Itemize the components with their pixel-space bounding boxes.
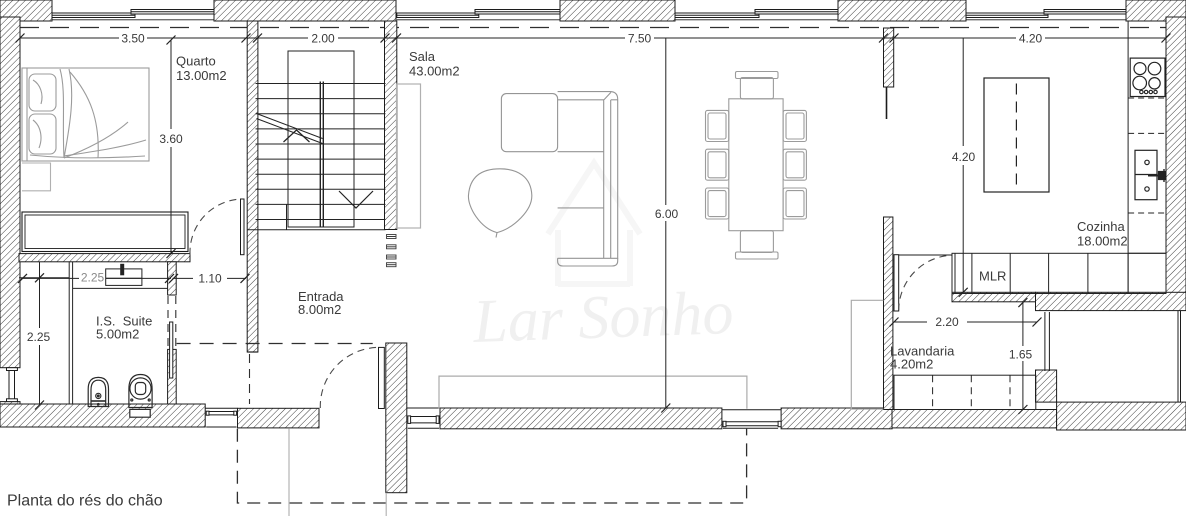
svg-text:18.00m2: 18.00m2 bbox=[1077, 234, 1128, 249]
svg-text:2.25: 2.25 bbox=[81, 271, 105, 285]
svg-text:Cozinha: Cozinha bbox=[1077, 219, 1125, 234]
svg-text:4.20: 4.20 bbox=[952, 150, 976, 164]
svg-text:7.50: 7.50 bbox=[628, 32, 652, 46]
svg-text:1.65: 1.65 bbox=[1009, 348, 1033, 362]
svg-text:3.60: 3.60 bbox=[159, 132, 183, 146]
svg-text:43.00m2: 43.00m2 bbox=[409, 64, 460, 79]
svg-text:2.00: 2.00 bbox=[311, 32, 335, 46]
svg-text:2.25: 2.25 bbox=[27, 330, 51, 344]
svg-text:MLR: MLR bbox=[979, 269, 1006, 284]
svg-text:5.00m2: 5.00m2 bbox=[96, 327, 139, 342]
svg-text:2.20: 2.20 bbox=[935, 315, 959, 329]
svg-text:4.20: 4.20 bbox=[1019, 32, 1043, 46]
svg-text:Quarto: Quarto bbox=[176, 54, 216, 69]
svg-text:13.00m2: 13.00m2 bbox=[176, 68, 227, 83]
svg-text:6.00: 6.00 bbox=[655, 207, 679, 221]
svg-text:Sala: Sala bbox=[409, 49, 436, 64]
svg-text:Lar Sonho: Lar Sonho bbox=[471, 279, 734, 356]
svg-text:8.00m2: 8.00m2 bbox=[298, 302, 341, 317]
svg-text:1.10: 1.10 bbox=[198, 272, 222, 286]
svg-text:4.20m2: 4.20m2 bbox=[890, 357, 933, 372]
svg-text:3.50: 3.50 bbox=[121, 32, 145, 46]
svg-text:Planta do rés do chão: Planta do rés do chão bbox=[7, 493, 163, 510]
